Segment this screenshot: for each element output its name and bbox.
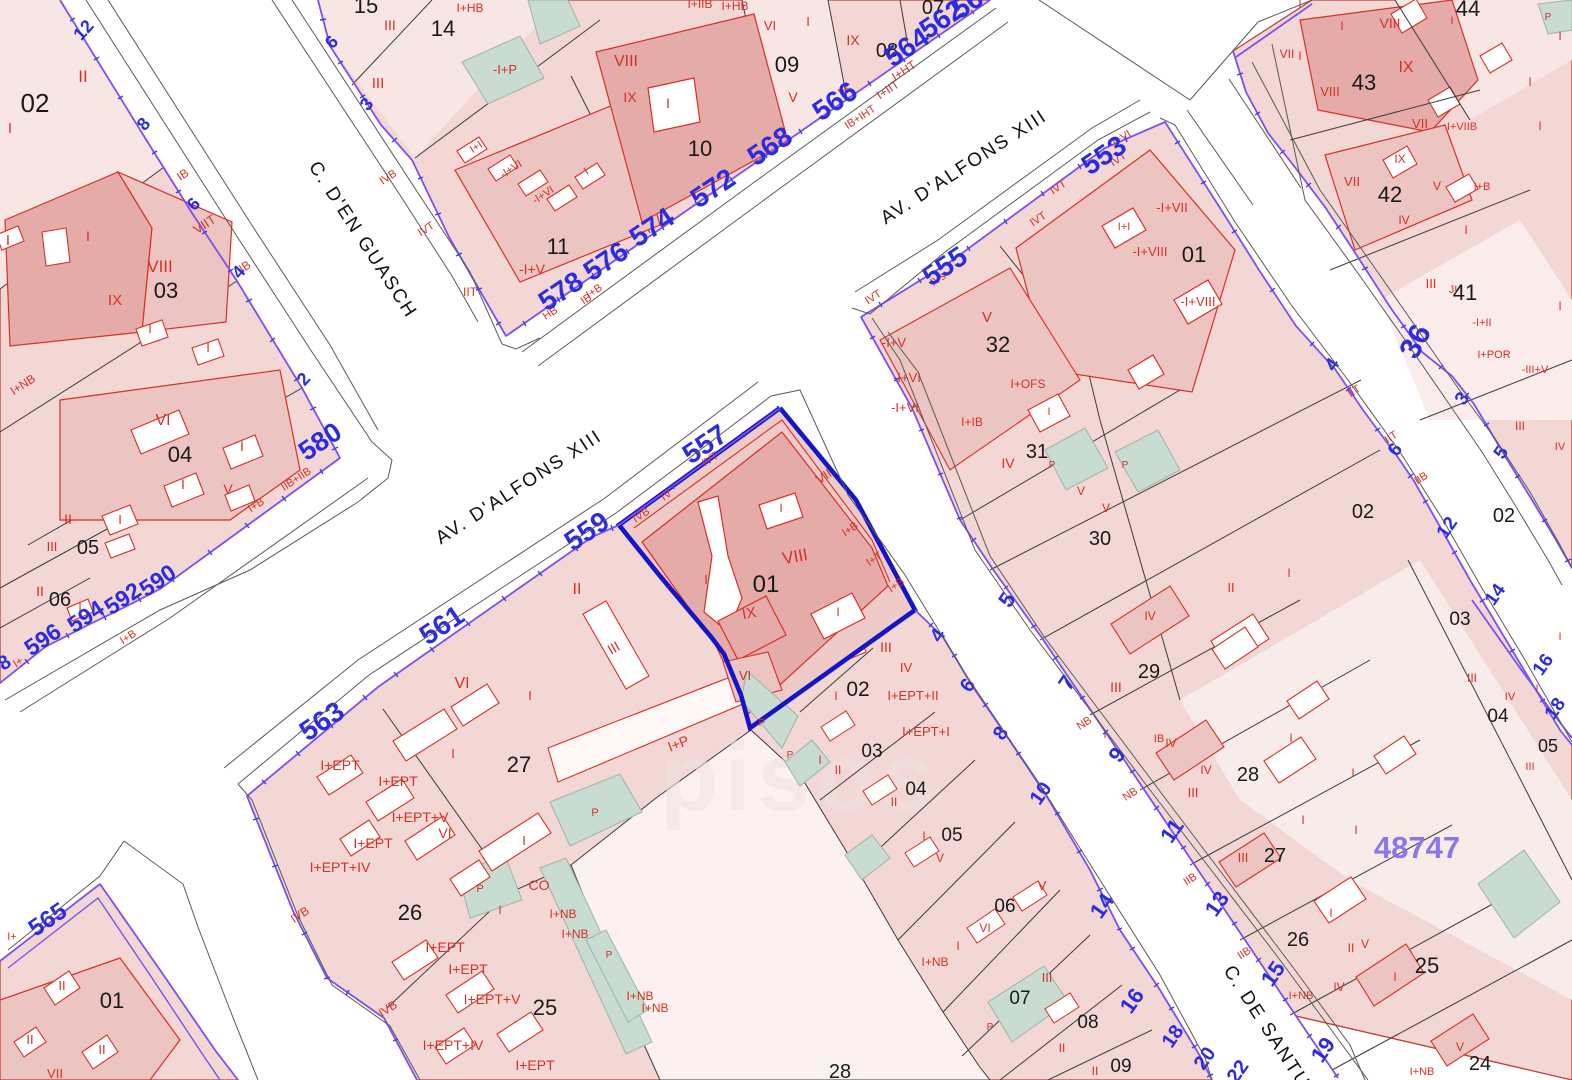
svg-text:I+EPT: I+EPT bbox=[425, 939, 465, 955]
svg-text:VIII: VIII bbox=[614, 53, 638, 70]
svg-text:V: V bbox=[1433, 179, 1441, 193]
svg-text:VII: VII bbox=[47, 1066, 63, 1080]
svg-text:09: 09 bbox=[775, 52, 799, 77]
svg-text:I: I bbox=[1558, 631, 1561, 643]
svg-text:I: I bbox=[1340, 19, 1343, 33]
svg-text:I+IIB: I+IIB bbox=[687, 0, 712, 11]
svg-text:29: 29 bbox=[1138, 661, 1160, 683]
svg-text:27: 27 bbox=[507, 752, 531, 777]
svg-text:II: II bbox=[573, 581, 582, 598]
svg-text:I: I bbox=[206, 340, 210, 355]
svg-text:26: 26 bbox=[1287, 929, 1309, 951]
svg-text:48747: 48747 bbox=[1374, 830, 1460, 865]
svg-text:CO: CO bbox=[529, 877, 550, 893]
svg-text:11: 11 bbox=[547, 234, 570, 259]
svg-text:VI: VI bbox=[979, 921, 990, 935]
svg-text:VII: VII bbox=[1412, 116, 1428, 131]
svg-text:I: I bbox=[1528, 75, 1531, 89]
svg-text:III: III bbox=[1515, 419, 1525, 433]
svg-text:06: 06 bbox=[994, 896, 1015, 917]
svg-text:I: I bbox=[240, 438, 244, 454]
svg-text:VII: VII bbox=[1344, 174, 1360, 189]
svg-text:I+EPT: I+EPT bbox=[353, 835, 393, 851]
svg-text:02: 02 bbox=[1493, 505, 1515, 527]
svg-text:I+HB: I+HB bbox=[456, 1, 483, 15]
svg-text:P: P bbox=[1049, 460, 1056, 471]
svg-text:IV: IV bbox=[1200, 763, 1211, 777]
svg-text:II: II bbox=[26, 1032, 33, 1047]
svg-text:I: I bbox=[834, 689, 837, 703]
svg-text:-I+V: -I+V bbox=[519, 261, 546, 277]
svg-text:I: I bbox=[1351, 766, 1354, 780]
svg-text:IX: IX bbox=[1394, 152, 1405, 166]
svg-text:VI: VI bbox=[739, 668, 751, 683]
svg-text:VIII: VIII bbox=[147, 257, 173, 276]
svg-text:V: V bbox=[223, 481, 233, 497]
svg-text:-I+VII: -I+VII bbox=[1156, 200, 1187, 215]
svg-text:I: I bbox=[148, 321, 152, 336]
svg-text:02: 02 bbox=[846, 678, 869, 701]
svg-text:JI: JI bbox=[1449, 284, 1458, 296]
svg-text:06: 06 bbox=[49, 589, 71, 611]
svg-text:P: P bbox=[759, 718, 766, 729]
svg-text:I+I: I+I bbox=[1118, 221, 1131, 233]
svg-text:I: I bbox=[181, 476, 185, 492]
svg-text:II: II bbox=[1348, 941, 1355, 955]
svg-text:I: I bbox=[8, 120, 12, 137]
svg-text:I+NB: I+NB bbox=[561, 927, 588, 941]
svg-text:II: II bbox=[1092, 1064, 1099, 1078]
svg-text:I+HB: I+HB bbox=[721, 0, 748, 13]
svg-text:III: III bbox=[1467, 671, 1477, 685]
svg-text:32: 32 bbox=[986, 332, 1010, 357]
svg-text:I: I bbox=[1558, 299, 1561, 313]
svg-text:I: I bbox=[779, 501, 782, 515]
svg-text:IV: IV bbox=[900, 660, 913, 675]
svg-text:III: III bbox=[372, 75, 385, 92]
svg-text:IV: IV bbox=[1555, 441, 1566, 453]
svg-text:II: II bbox=[78, 67, 87, 86]
svg-text:I: I bbox=[1538, 119, 1541, 133]
svg-text:I+B: I+B bbox=[1474, 181, 1491, 193]
svg-text:I+OFS: I+OFS bbox=[1010, 377, 1045, 391]
svg-text:V: V bbox=[1361, 937, 1369, 951]
svg-text:V: V bbox=[1102, 501, 1110, 515]
svg-text:I+EPT: I+EPT bbox=[515, 1057, 555, 1073]
svg-text:I+EPT+II: I+EPT+II bbox=[887, 688, 938, 703]
svg-text:IV: IV bbox=[1505, 691, 1516, 703]
svg-text:04: 04 bbox=[1487, 706, 1509, 727]
svg-text:01: 01 bbox=[100, 988, 124, 1013]
svg-text:IB: IB bbox=[1154, 733, 1164, 745]
svg-text:I+POR: I+POR bbox=[1477, 349, 1510, 361]
svg-text:III: III bbox=[384, 17, 396, 33]
svg-text:-I+II: -I+II bbox=[1472, 317, 1491, 329]
svg-text:I+EPT+I: I+EPT+I bbox=[902, 724, 950, 739]
svg-text:III: III bbox=[1525, 761, 1534, 773]
svg-text:04: 04 bbox=[905, 779, 927, 800]
svg-text:44: 44 bbox=[1456, 0, 1480, 21]
svg-text:IIT: IIT bbox=[463, 285, 478, 299]
svg-text:I: I bbox=[1289, 731, 1292, 745]
svg-text:42: 42 bbox=[1378, 182, 1402, 207]
svg-text:II: II bbox=[58, 978, 65, 993]
svg-text:05: 05 bbox=[77, 537, 99, 559]
svg-text:-I+VI: -I+VI bbox=[891, 400, 919, 415]
svg-text:05: 05 bbox=[941, 825, 962, 846]
svg-text:I: I bbox=[1329, 906, 1332, 920]
svg-text:I: I bbox=[818, 753, 821, 767]
svg-text:31: 31 bbox=[1026, 441, 1048, 463]
svg-text:VI: VI bbox=[764, 18, 776, 33]
svg-text:-I+VIII: -I+VIII bbox=[1180, 294, 1215, 309]
svg-text:I: I bbox=[806, 14, 810, 29]
svg-text:I: I bbox=[1301, 813, 1304, 827]
svg-text:08: 08 bbox=[1077, 1012, 1098, 1033]
svg-text:28: 28 bbox=[829, 1061, 851, 1080]
svg-text:IV: IV bbox=[1333, 980, 1344, 994]
svg-text:IX: IX bbox=[108, 292, 122, 309]
svg-text:03: 03 bbox=[1449, 609, 1470, 630]
svg-text:VI: VI bbox=[155, 412, 170, 429]
svg-text:I+EPT: I+EPT bbox=[320, 757, 360, 773]
svg-text:IV: IV bbox=[1144, 609, 1155, 623]
svg-text:25: 25 bbox=[1415, 953, 1439, 978]
svg-text:I+EPT+IV: I+EPT+IV bbox=[310, 859, 371, 875]
svg-text:III: III bbox=[1042, 970, 1053, 985]
svg-text:IX: IX bbox=[623, 89, 637, 105]
svg-text:26: 26 bbox=[398, 900, 422, 925]
svg-text:III: III bbox=[1426, 276, 1437, 291]
svg-text:I: I bbox=[1298, 49, 1301, 63]
svg-text:III: III bbox=[880, 639, 892, 655]
svg-text:IX: IX bbox=[1398, 59, 1413, 76]
svg-text:-I+V: -I+V bbox=[882, 335, 907, 350]
svg-text:II: II bbox=[64, 511, 72, 527]
svg-text:II: II bbox=[36, 583, 44, 599]
svg-text:03: 03 bbox=[154, 278, 178, 303]
svg-text:P: P bbox=[606, 950, 613, 961]
svg-text:P: P bbox=[1545, 12, 1552, 23]
svg-text:P: P bbox=[1122, 460, 1129, 471]
svg-text:VIII: VIII bbox=[1379, 15, 1400, 31]
svg-text:P: P bbox=[987, 1022, 994, 1033]
svg-text:I: I bbox=[1535, 683, 1538, 695]
svg-text:I: I bbox=[922, 829, 925, 843]
svg-text:-I+VIII: -I+VIII bbox=[1132, 244, 1167, 259]
svg-text:I+EPT+IV: I+EPT+IV bbox=[423, 1037, 484, 1053]
svg-text:V: V bbox=[1038, 878, 1047, 893]
svg-text:30: 30 bbox=[1089, 528, 1111, 550]
svg-text:P: P bbox=[476, 883, 483, 895]
svg-text:V: V bbox=[1077, 484, 1085, 498]
svg-text:05: 05 bbox=[1538, 736, 1558, 756]
svg-text:25: 25 bbox=[533, 995, 557, 1020]
svg-text:I: I bbox=[86, 228, 90, 244]
svg-text:P: P bbox=[787, 750, 794, 761]
svg-text:-III+V: -III+V bbox=[1522, 364, 1549, 376]
svg-text:03: 03 bbox=[861, 741, 882, 762]
svg-text:I: I bbox=[1464, 223, 1467, 237]
svg-text:I+NB: I+NB bbox=[641, 1001, 668, 1015]
svg-text:II: II bbox=[891, 795, 898, 809]
svg-text:I: I bbox=[704, 572, 708, 587]
svg-text:I+NB: I+NB bbox=[1410, 1066, 1435, 1078]
svg-text:27: 27 bbox=[1264, 845, 1286, 867]
svg-text:01: 01 bbox=[1182, 242, 1206, 267]
svg-text:I+NB: I+NB bbox=[921, 955, 948, 969]
svg-text:I: I bbox=[1354, 823, 1357, 837]
svg-text:I: I bbox=[118, 512, 122, 527]
svg-text:IV: IV bbox=[1165, 736, 1176, 750]
svg-text:VII: VII bbox=[1280, 47, 1295, 61]
svg-text:I: I bbox=[1047, 406, 1050, 418]
svg-text:VI: VI bbox=[438, 825, 451, 841]
svg-text:I+: I+ bbox=[7, 931, 16, 943]
svg-text:II: II bbox=[98, 1042, 105, 1057]
svg-text:II: II bbox=[1227, 580, 1234, 595]
svg-text:V: V bbox=[1456, 1040, 1464, 1054]
svg-text:I: I bbox=[1287, 566, 1290, 580]
svg-text:14: 14 bbox=[431, 16, 455, 41]
svg-text:III: III bbox=[1188, 785, 1199, 800]
svg-text:I+EPT+V: I+EPT+V bbox=[392, 809, 449, 825]
svg-text:43: 43 bbox=[1352, 70, 1376, 95]
svg-text:V: V bbox=[982, 309, 992, 326]
svg-text:I: I bbox=[1393, 970, 1396, 984]
svg-text:I: I bbox=[956, 939, 959, 953]
svg-text:V: V bbox=[936, 851, 944, 865]
svg-text:10: 10 bbox=[688, 136, 712, 161]
svg-text:I+VIIB: I+VIIB bbox=[1447, 121, 1477, 133]
svg-text:I: I bbox=[6, 232, 10, 249]
svg-text:I+EPT: I+EPT bbox=[378, 773, 418, 789]
svg-text:IX: IX bbox=[741, 604, 758, 623]
svg-text:II: II bbox=[1059, 1041, 1066, 1055]
svg-text:V: V bbox=[788, 89, 798, 105]
svg-text:III: III bbox=[1238, 850, 1249, 865]
svg-text:02: 02 bbox=[21, 88, 50, 118]
svg-text:I: I bbox=[528, 688, 532, 703]
svg-text:III: III bbox=[1110, 679, 1122, 695]
svg-text:II: II bbox=[835, 763, 842, 777]
svg-text:P: P bbox=[591, 807, 598, 819]
svg-text:I: I bbox=[666, 95, 670, 111]
svg-text:IX: IX bbox=[846, 32, 860, 48]
svg-text:IV: IV bbox=[1398, 213, 1409, 227]
svg-text:I: I bbox=[1450, 15, 1453, 27]
svg-text:09: 09 bbox=[1110, 1056, 1131, 1077]
svg-text:I+EPT: I+EPT bbox=[448, 961, 488, 977]
svg-text:VIII: VIII bbox=[1320, 84, 1340, 99]
svg-text:01: 01 bbox=[753, 571, 780, 598]
svg-text:I+IB: I+IB bbox=[961, 415, 983, 429]
svg-text:IV: IV bbox=[1001, 455, 1015, 471]
svg-text:III: III bbox=[47, 539, 58, 554]
svg-text:VI: VI bbox=[454, 675, 469, 692]
svg-text:I: I bbox=[836, 605, 839, 619]
svg-text:I: I bbox=[498, 903, 501, 917]
svg-text:24: 24 bbox=[1469, 1053, 1491, 1075]
svg-text:15: 15 bbox=[354, 0, 378, 18]
svg-text:I: I bbox=[1558, 29, 1561, 43]
svg-text:02: 02 bbox=[1352, 501, 1374, 523]
svg-text:04: 04 bbox=[168, 442, 192, 467]
svg-text:28: 28 bbox=[1237, 764, 1259, 786]
svg-text:I: I bbox=[451, 746, 455, 761]
svg-text:07: 07 bbox=[1009, 988, 1030, 1009]
svg-text:-I+P: -I+P bbox=[493, 62, 517, 77]
svg-text:I+EPT+V: I+EPT+V bbox=[464, 991, 521, 1007]
svg-text:I: I bbox=[522, 833, 526, 848]
svg-text:I+NB: I+NB bbox=[549, 907, 576, 921]
